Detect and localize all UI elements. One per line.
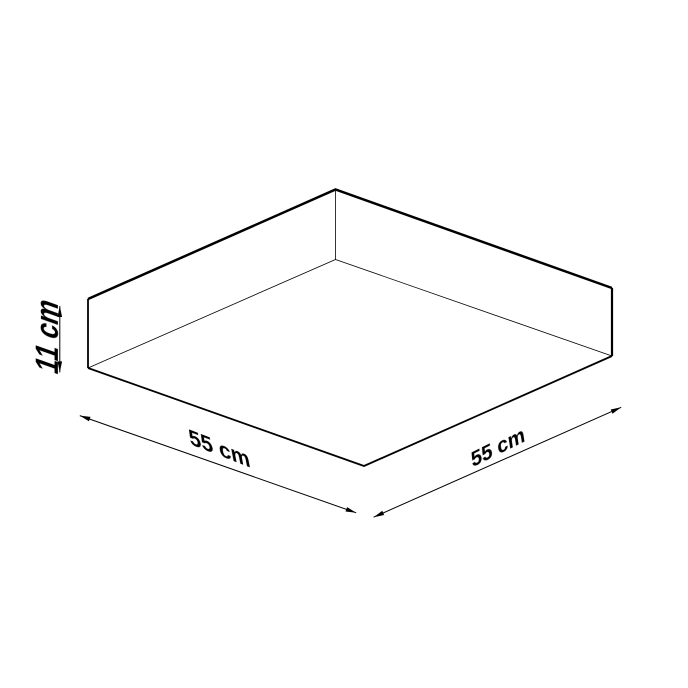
svg-text:11 cm: 11 cm bbox=[30, 294, 65, 379]
